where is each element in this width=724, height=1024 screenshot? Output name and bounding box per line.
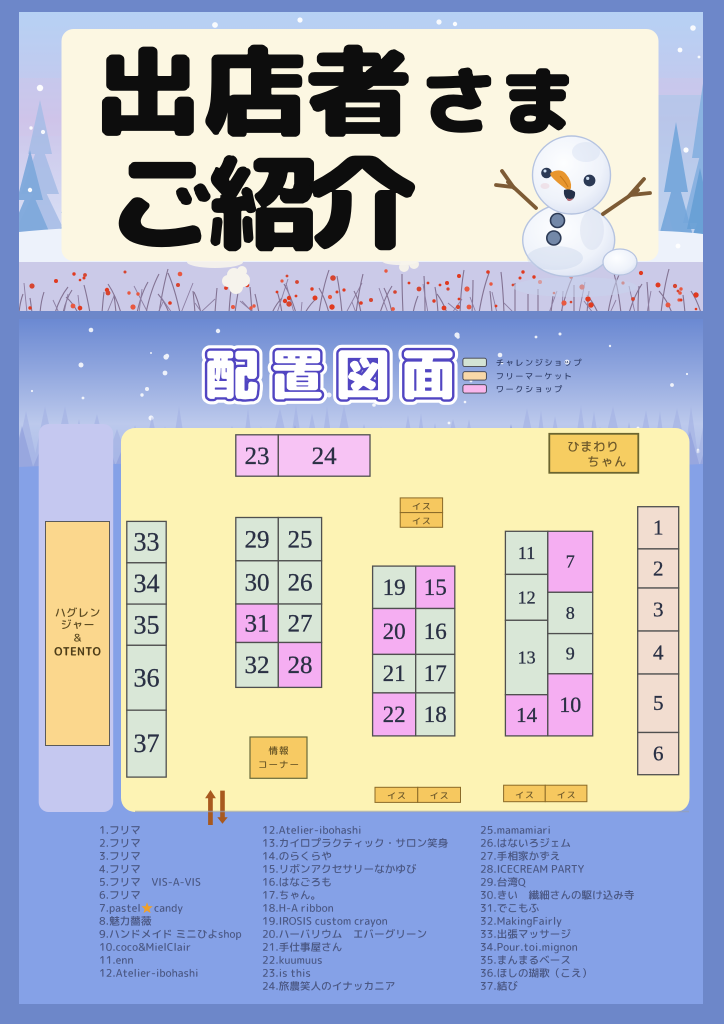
svg-text:14: 14 [516,703,538,727]
svg-text:33: 33 [134,528,160,557]
svg-text:32: 32 [245,652,270,679]
svg-text:36: 36 [134,663,160,692]
svg-text:7: 7 [566,552,575,572]
svg-text:25: 25 [287,526,312,553]
svg-text:8: 8 [566,603,575,623]
svg-text:16: 16 [424,619,447,644]
svg-text:21: 21 [383,661,406,686]
svg-text:28: 28 [287,652,312,679]
svg-text:18: 18 [424,702,447,727]
svg-text:27: 27 [287,611,312,638]
svg-text:22: 22 [383,702,406,727]
svg-text:11: 11 [518,543,535,563]
svg-text:12: 12 [518,587,536,607]
svg-text:17: 17 [424,661,447,686]
svg-text:19: 19 [383,575,406,600]
svg-text:24: 24 [312,443,338,470]
svg-text:34: 34 [134,569,160,598]
svg-text:1: 1 [653,516,664,540]
svg-text:35: 35 [134,610,160,639]
svg-text:2: 2 [653,556,664,580]
svg-text:6: 6 [653,742,664,766]
svg-text:26: 26 [287,570,312,597]
svg-text:37: 37 [134,729,160,758]
svg-text:10: 10 [559,692,581,717]
svg-text:30: 30 [245,570,270,597]
svg-text:9: 9 [566,644,575,664]
svg-text:3: 3 [653,597,664,621]
svg-text:23: 23 [245,443,270,470]
svg-text:31: 31 [245,611,270,638]
svg-text:5: 5 [653,691,664,715]
svg-text:4: 4 [653,640,664,664]
svg-text:15: 15 [424,575,447,600]
svg-text:29: 29 [245,526,270,553]
svg-text:13: 13 [518,647,536,667]
svg-text:20: 20 [383,619,406,644]
